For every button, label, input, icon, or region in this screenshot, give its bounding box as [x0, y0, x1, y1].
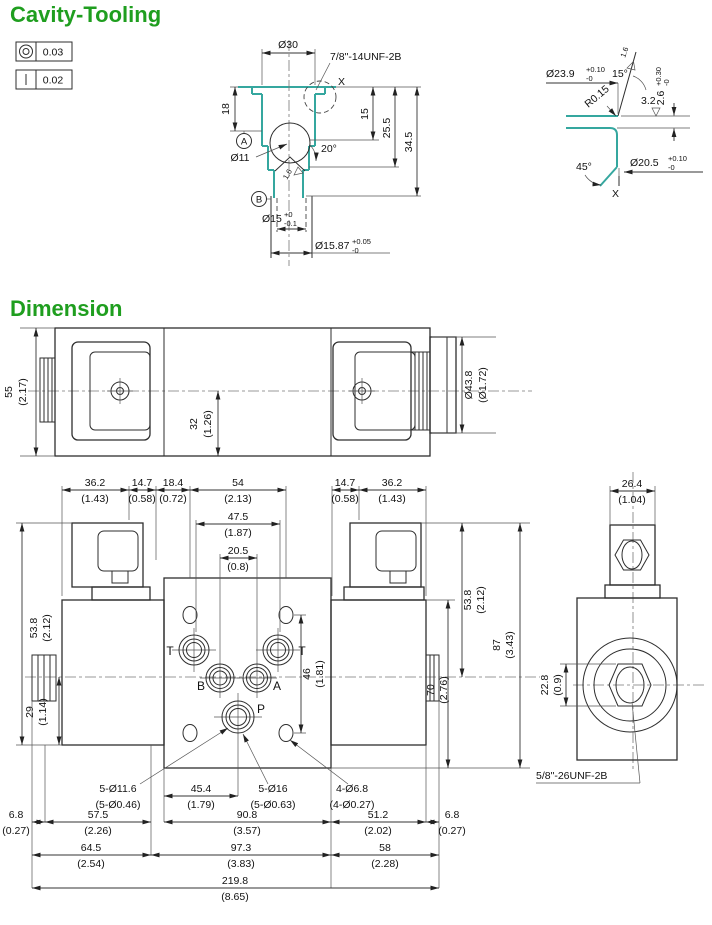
- top-view: 55 (2.17) 32 (1.26) Ø43.8 (Ø1.72): [3, 328, 532, 456]
- dim-front-top-36-2-right: 36.2 (1.43): [359, 477, 426, 505]
- valve-technical-drawing: Cavity-Tooling 0.03 0.02 Ø30 7/8"-14UNF-…: [0, 0, 712, 925]
- gland-hex: [615, 540, 649, 570]
- svg-text:(0.9): (0.9): [552, 674, 564, 696]
- dim-front-top-14-7-right: 14.7 (0.58): [331, 477, 359, 505]
- svg-text:(0.72): (0.72): [159, 493, 186, 505]
- svg-text:45.4: 45.4: [191, 783, 212, 795]
- cavity-tooling-title: Cavity-Tooling: [10, 2, 161, 27]
- callout-4-dia6-8: 4-Ø6.8 (4-Ø0.27): [290, 740, 374, 811]
- svg-text:36.2: 36.2: [85, 477, 106, 489]
- svg-text:(0.8): (0.8): [227, 561, 249, 573]
- dim-front-top-47-5: 47.5 (1.87): [196, 511, 280, 539]
- seat-cone: [275, 157, 305, 171]
- side-view: 26.4 (1.04) 22.8 (0.9) 5/8"-26UNF-2B: [536, 472, 706, 783]
- valve-datasheet-page: Cavity-Tooling 0.03 0.02 Ø30 7/8"-14UNF-…: [0, 0, 712, 925]
- svg-text:6.8: 6.8: [9, 809, 24, 821]
- svg-text:(1.79): (1.79): [187, 799, 214, 811]
- svg-text:(8.65): (8.65): [221, 891, 248, 903]
- svg-text:36.2: 36.2: [382, 477, 403, 489]
- svg-text:53.8: 53.8: [28, 618, 40, 639]
- concentricity-value: 0.03: [43, 47, 64, 59]
- datum-b: B: [252, 192, 272, 207]
- svg-text:32: 32: [188, 418, 200, 430]
- svg-text:(1.43): (1.43): [378, 493, 405, 505]
- svg-text:(2.28): (2.28): [371, 858, 398, 870]
- svg-text:(2.12): (2.12): [475, 586, 487, 613]
- svg-text:(1.14): (1.14): [37, 698, 49, 725]
- svg-text:(2.12): (2.12): [41, 614, 53, 641]
- dim-top-32: 32 (1.26): [188, 391, 218, 456]
- dim-top-dia43-8: Ø43.8 (Ø1.72): [432, 337, 496, 433]
- svg-text:2.6: 2.6: [655, 91, 667, 106]
- dim-front-top-54: 54 (2.13): [190, 477, 286, 505]
- dim-cavity-dia15: Ø15 +0 -0.1: [262, 210, 306, 229]
- svg-text:(1.43): (1.43): [81, 493, 108, 505]
- svg-text:(1.26): (1.26): [202, 410, 214, 437]
- svg-text:6.8: 6.8: [445, 809, 460, 821]
- svg-text:Ø43.8: Ø43.8: [463, 371, 475, 400]
- svg-text:87: 87: [491, 639, 503, 651]
- svg-text:58: 58: [379, 842, 391, 854]
- cable-gland-front-left: [32, 655, 56, 701]
- svg-text:53.8: 53.8: [462, 590, 474, 611]
- dimension-section: Dimension: [2, 296, 706, 903]
- svg-text:(0.27): (0.27): [2, 825, 29, 837]
- svg-text:(3.57): (3.57): [233, 825, 260, 837]
- surface-finish-1-6-detail: 1.6: [618, 46, 635, 70]
- port-a: A: [237, 658, 281, 698]
- dim-front-90-8: 90.8 (3.57): [164, 809, 331, 837]
- solenoid-coil-left: [62, 600, 164, 745]
- svg-text:-0.1: -0.1: [284, 219, 297, 228]
- dim-front-top-20-5: 20.5 (0.8): [220, 545, 257, 573]
- svg-text:15°: 15°: [612, 68, 628, 80]
- dim-front-45-4: 45.4 (1.79): [164, 783, 238, 811]
- dim-front-46: 46 (1.81): [294, 615, 326, 733]
- svg-text:Ø30: Ø30: [278, 39, 298, 51]
- detail-profile: [566, 116, 618, 186]
- dim-detail-angle45: 45°: [576, 161, 601, 185]
- svg-text:1.6: 1.6: [618, 46, 630, 59]
- svg-text:5-Ø11.6: 5-Ø11.6: [99, 783, 136, 795]
- port-label-t-left: T: [166, 644, 174, 658]
- port-label-a: A: [273, 679, 281, 693]
- din-connector-front-left: [72, 523, 150, 600]
- dim-detail-dia20-5: Ø20.5 +0.10 -0: [619, 154, 703, 180]
- datum-a: A: [237, 131, 252, 149]
- concentricity-icon: [20, 45, 33, 58]
- svg-text:5-Ø16: 5-Ø16: [258, 783, 287, 795]
- svg-text:-0: -0: [668, 163, 675, 172]
- gdt-frame-concentricity: 0.03: [16, 42, 72, 61]
- svg-text:20.5: 20.5: [228, 545, 249, 557]
- svg-text:Ø23.9: Ø23.9: [546, 68, 575, 80]
- svg-text:+0: +0: [284, 210, 293, 219]
- finish-triangle-icon: [652, 108, 660, 116]
- svg-text:(0.58): (0.58): [331, 493, 358, 505]
- svg-text:70: 70: [425, 684, 437, 696]
- front-view: T T B A P: [2, 477, 540, 903]
- dim-detail-angle15: 15°: [612, 68, 646, 90]
- svg-text:54: 54: [232, 477, 244, 489]
- svg-text:(3.43): (3.43): [504, 631, 516, 658]
- svg-text:+0.05: +0.05: [352, 237, 371, 246]
- svg-text:-0: -0: [352, 246, 359, 255]
- svg-text:Ø11: Ø11: [230, 152, 249, 164]
- dim-front-97-3: 97.3 (3.83): [151, 842, 331, 870]
- svg-text:90.8: 90.8: [237, 809, 258, 821]
- valve-body-side: [577, 598, 677, 760]
- dim-front-219-8: 219.8 (8.65): [32, 875, 439, 903]
- dim-front-57-5: 57.5 (2.26): [45, 809, 151, 837]
- svg-text:(0.27): (0.27): [438, 825, 465, 837]
- svg-text:15: 15: [359, 108, 371, 120]
- dim-cavity-depth25-5: 25.5: [381, 87, 395, 167]
- svg-text:51.2: 51.2: [368, 809, 389, 821]
- svg-text:3.2: 3.2: [641, 95, 656, 107]
- svg-text:34.5: 34.5: [403, 132, 415, 153]
- side-view-centerlines: [573, 472, 706, 772]
- port-label-p: P: [257, 702, 265, 716]
- solenoid-coil-right: [331, 600, 426, 745]
- svg-text:25.5: 25.5: [381, 118, 393, 139]
- svg-text:Ø15: Ø15: [262, 213, 282, 225]
- cable-gland-top-left: [40, 358, 55, 422]
- svg-text:(2.17): (2.17): [17, 378, 29, 405]
- straightness-value: 0.02: [43, 75, 64, 87]
- svg-text:57.5: 57.5: [88, 809, 109, 821]
- svg-text:(3.83): (3.83): [227, 858, 254, 870]
- dim-detail-radius: R0.15: [582, 83, 616, 116]
- detail-x-view: Ø23.9 +0.10 -0 15° 1.6 R0.15 3.2: [546, 46, 703, 200]
- svg-text:45°: 45°: [576, 161, 592, 173]
- dim-cavity-dia30: Ø30: [262, 39, 315, 85]
- port-b: B: [197, 658, 240, 698]
- svg-text:A: A: [241, 137, 248, 148]
- dimension-title: Dimension: [10, 296, 122, 321]
- callout-side-thread: 5/8"-26UNF-2B: [536, 702, 640, 783]
- svg-text:14.7: 14.7: [335, 477, 356, 489]
- svg-text:(2.02): (2.02): [364, 825, 391, 837]
- dim-front-51-2: 51.2 (2.02): [331, 809, 426, 837]
- dim-side-26-4: 26.4 (1.04): [610, 478, 655, 525]
- detail-x-label: X: [612, 188, 619, 200]
- din-connector-front-right: [344, 523, 424, 600]
- svg-text:64.5: 64.5: [81, 842, 102, 854]
- svg-text:1.6: 1.6: [281, 167, 294, 181]
- detail-x-circle: [304, 81, 336, 113]
- svg-text:18.4: 18.4: [163, 477, 184, 489]
- dim-front-left-29: 29 (1.14): [24, 677, 59, 745]
- svg-text:B: B: [256, 195, 262, 206]
- port-p: P: [214, 693, 265, 741]
- svg-text:+0.10: +0.10: [586, 65, 605, 74]
- svg-text:Ø15.87: Ø15.87: [315, 240, 350, 252]
- svg-text:219.8: 219.8: [222, 875, 248, 887]
- svg-text:7/8"-14UNF-2B: 7/8"-14UNF-2B: [330, 51, 401, 63]
- svg-text:26.4: 26.4: [622, 478, 643, 490]
- svg-text:-0: -0: [586, 74, 593, 83]
- svg-text:29: 29: [24, 706, 36, 718]
- svg-text:46: 46: [301, 668, 313, 680]
- svg-text:14.7: 14.7: [132, 477, 153, 489]
- svg-text:22.8: 22.8: [539, 675, 551, 696]
- svg-text:55: 55: [3, 386, 15, 398]
- connector-side-top: [605, 525, 660, 598]
- dim-front-6-8-left: 6.8 (0.27): [2, 809, 45, 837]
- dim-front-top-18-4: 18.4 (0.72): [156, 477, 190, 505]
- dim-front-top-14-7-left: 14.7 (0.58): [128, 477, 156, 505]
- svg-text:(Ø1.72): (Ø1.72): [477, 367, 489, 403]
- svg-text:97.3: 97.3: [231, 842, 252, 854]
- svg-text:(2.26): (2.26): [84, 825, 111, 837]
- svg-text:4-Ø6.8: 4-Ø6.8: [336, 783, 368, 795]
- side-thread-spec: 5/8"-26UNF-2B: [536, 770, 607, 782]
- gdt-frame-straightness: 0.02: [16, 70, 72, 89]
- dim-top-55: 55 (2.17): [3, 328, 55, 456]
- dim-front-right-87: 87 (3.43): [331, 523, 530, 768]
- svg-text:20°: 20°: [321, 143, 337, 155]
- surface-finish-1-6: 1.6: [281, 167, 303, 181]
- svg-text:(2.13): (2.13): [224, 493, 251, 505]
- cavity-cross-section: Ø30 7/8"-14UNF-2B X 15 25.5 34.5 18: [220, 39, 421, 266]
- retaining-nut-top: [430, 337, 456, 433]
- svg-text:-0: -0: [662, 79, 671, 86]
- svg-text:Ø20.5: Ø20.5: [630, 157, 659, 169]
- svg-text:+0.10: +0.10: [668, 154, 687, 163]
- svg-text:(1.81): (1.81): [314, 660, 326, 687]
- dim-front-6-8-right: 6.8 (0.27): [426, 809, 466, 837]
- svg-text:18: 18: [220, 103, 232, 115]
- port-label-t-right: T: [298, 644, 306, 658]
- svg-text:(2.76): (2.76): [438, 676, 450, 703]
- svg-text:47.5: 47.5: [228, 511, 249, 523]
- dim-cavity-depth34-5: 34.5: [403, 87, 417, 196]
- svg-text:(2.54): (2.54): [77, 858, 104, 870]
- callout-5-dia16: 5-Ø16 (5-Ø0.63): [243, 734, 295, 811]
- detail-x-ref: X: [338, 76, 345, 88]
- dim-front-58: 58 (2.28): [331, 842, 439, 870]
- port-label-b: B: [197, 679, 205, 693]
- svg-text:(1.87): (1.87): [224, 527, 251, 539]
- dim-cavity-depth15: 15: [359, 87, 373, 140]
- port-t-left: T: [166, 628, 216, 672]
- cavity-tooling-section: Cavity-Tooling 0.03 0.02 Ø30 7/8"-14UNF-…: [10, 2, 703, 266]
- dim-front-64-5: 64.5 (2.54): [32, 842, 151, 870]
- svg-text:(0.58): (0.58): [128, 493, 155, 505]
- svg-text:(1.04): (1.04): [618, 494, 645, 506]
- finish-triangle-icon: [627, 62, 635, 71]
- dim-front-top-36-2-left: 36.2 (1.43): [62, 477, 129, 505]
- svg-text:(5-Ø0.63): (5-Ø0.63): [251, 799, 296, 811]
